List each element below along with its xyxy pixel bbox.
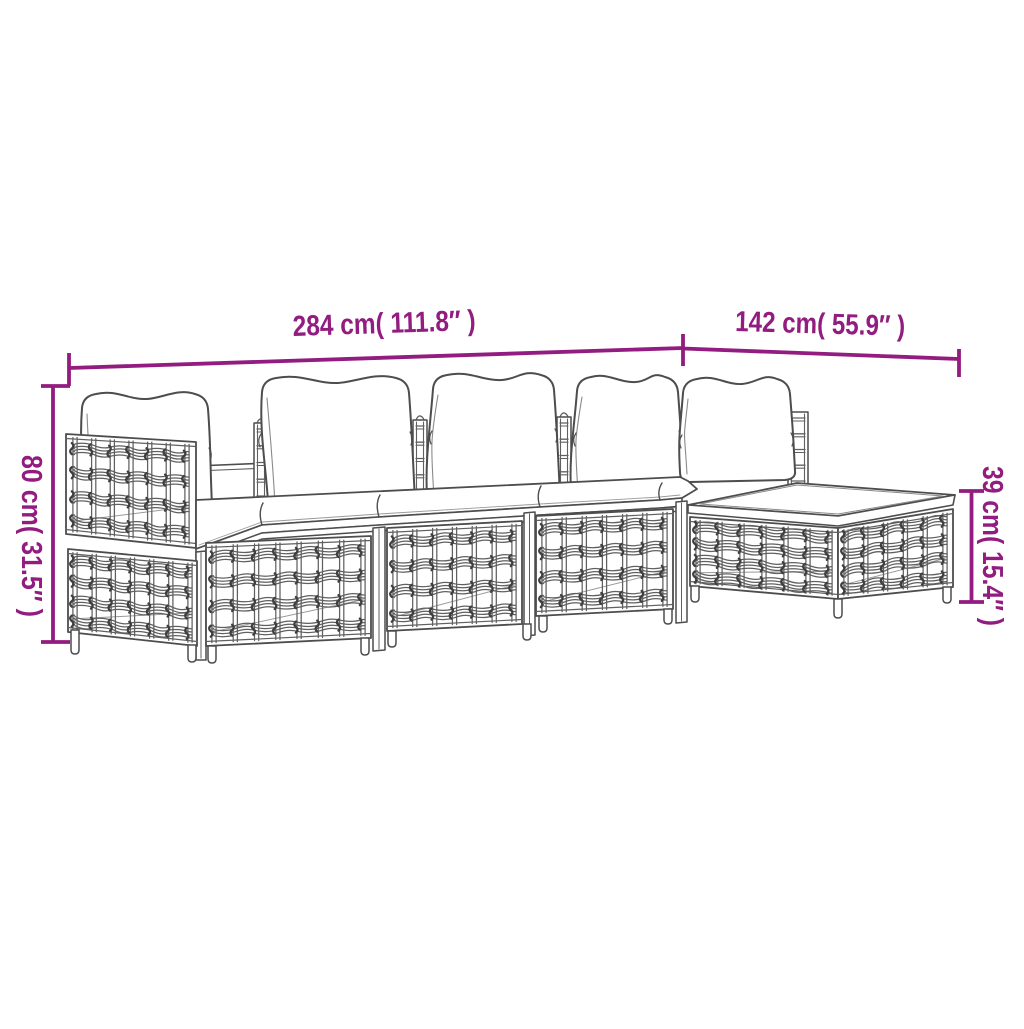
svg-text:39 cm( 15.4″ ): 39 cm( 15.4″ ) bbox=[976, 466, 1008, 626]
svg-text:142 cm( 55.9″ ): 142 cm( 55.9″ ) bbox=[735, 306, 906, 343]
svg-text:80 cm( 31.5″ ): 80 cm( 31.5″ ) bbox=[15, 455, 47, 617]
svg-text:284 cm( 111.8″ ): 284 cm( 111.8″ ) bbox=[292, 305, 476, 343]
